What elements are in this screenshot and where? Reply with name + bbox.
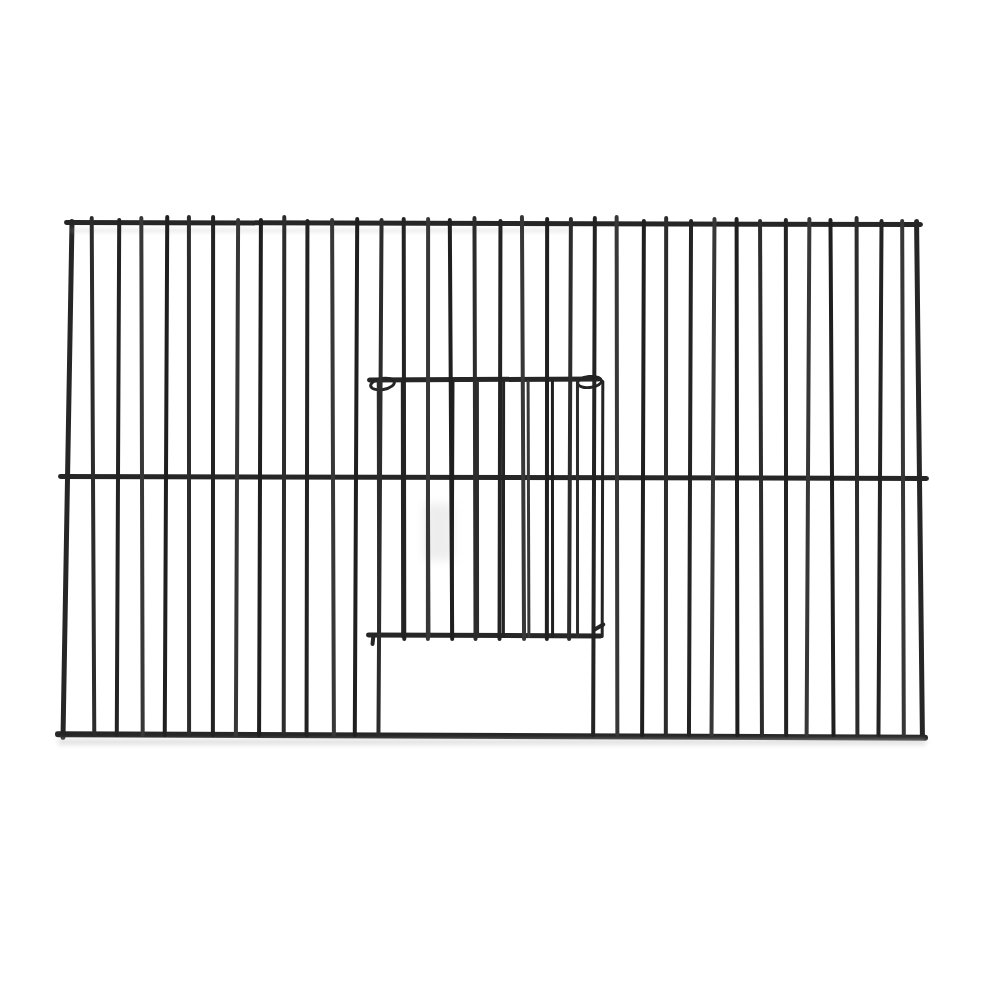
door-wire <box>451 380 455 638</box>
vertical-bar <box>211 215 215 737</box>
door-bottom-hook-left <box>370 633 375 646</box>
door-wire <box>376 380 380 638</box>
vertical-bar <box>520 215 526 641</box>
top-rail-ghost <box>70 229 570 232</box>
vertical-bar <box>330 218 336 737</box>
vertical-bar <box>567 217 573 641</box>
vertical-bar <box>783 218 788 737</box>
frame-left-wire <box>60 219 74 740</box>
vertical-bar <box>352 217 359 737</box>
vertical-bar <box>615 215 620 737</box>
door-wire <box>527 380 531 638</box>
cage-front-panel <box>0 0 1000 1000</box>
door-wire <box>601 380 605 638</box>
product-photo <box>0 0 1000 1000</box>
cage-shadow <box>58 740 926 744</box>
door-wire <box>476 380 480 638</box>
vertical-bar <box>282 215 286 737</box>
door-opening <box>381 641 590 733</box>
vertical-bar <box>187 215 191 737</box>
door-wire <box>551 380 555 638</box>
door-wire <box>502 380 506 638</box>
vertical-bar <box>855 216 860 737</box>
vertical-bar <box>735 217 740 737</box>
frame-top-rail <box>64 220 923 227</box>
door-wire <box>576 380 579 638</box>
vertical-bar <box>663 216 667 737</box>
vertical-bar <box>591 216 597 737</box>
vertical-bar <box>545 217 549 641</box>
